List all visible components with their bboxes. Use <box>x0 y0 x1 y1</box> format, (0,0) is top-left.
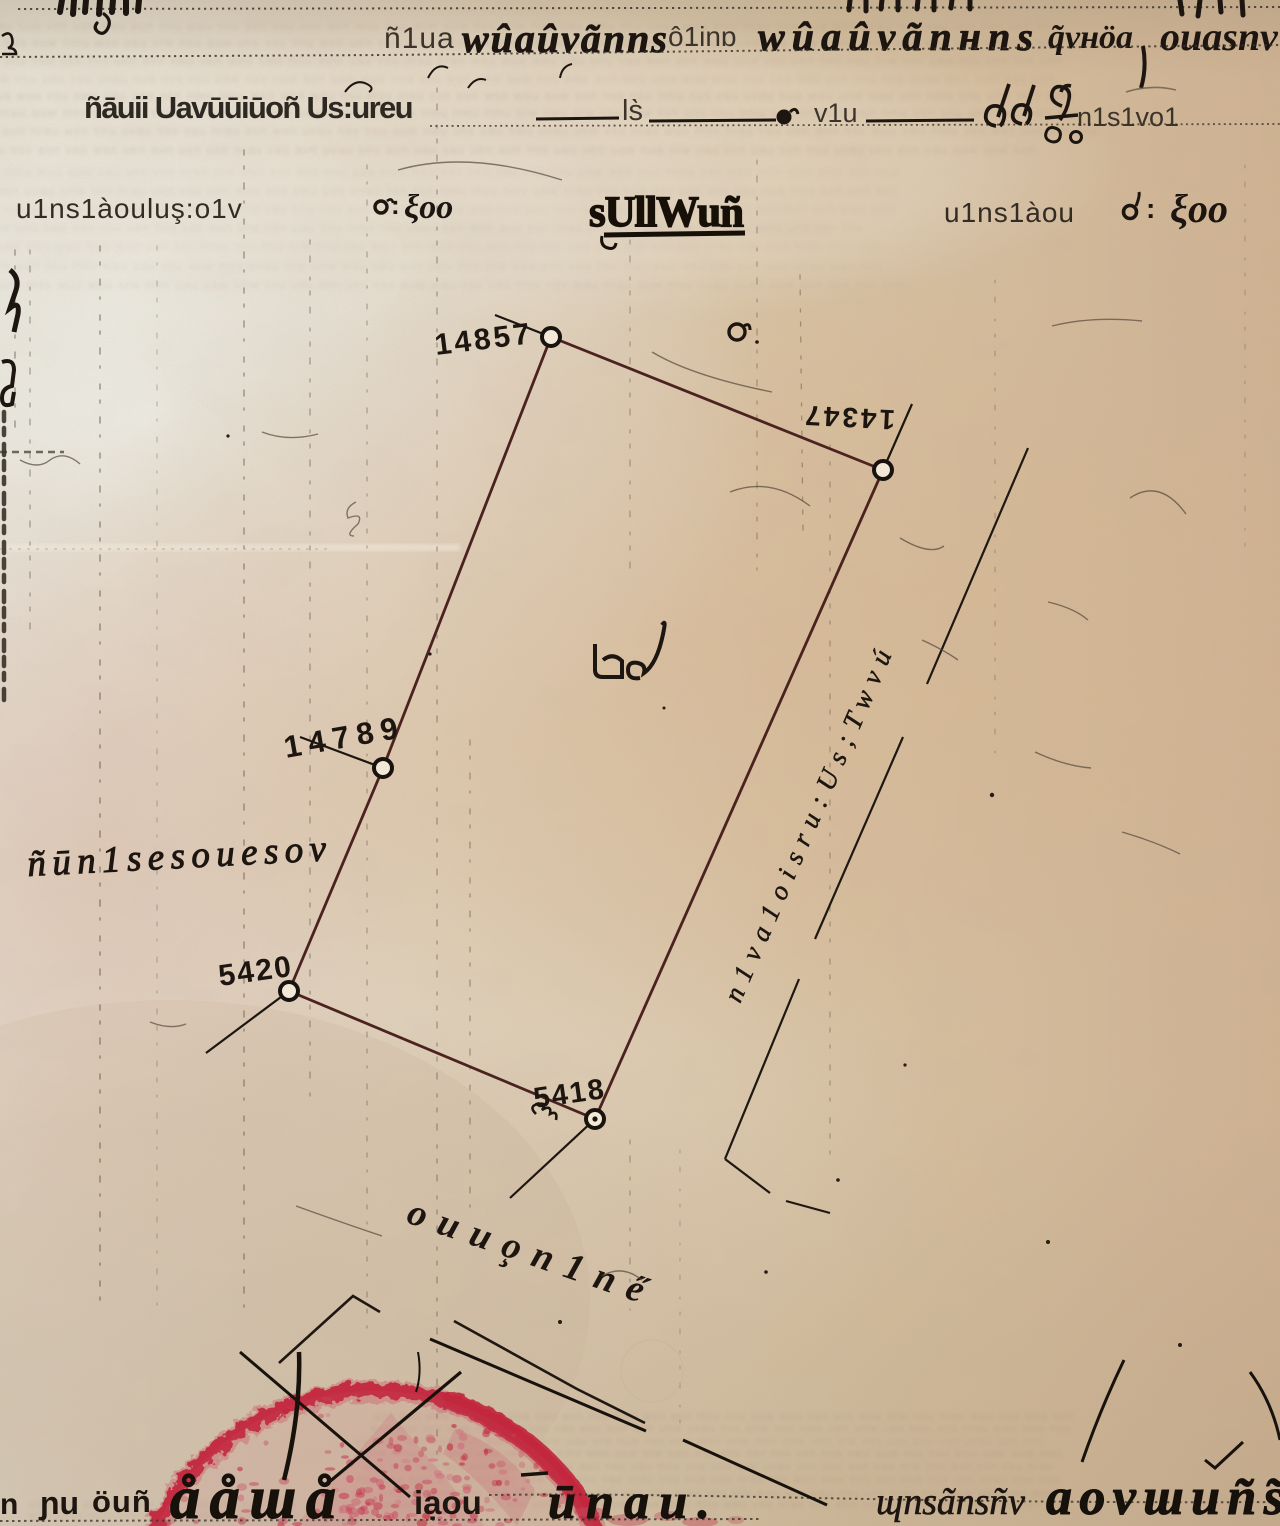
svg-text:wûaûvãnns: wûaûvãnns <box>462 16 667 61</box>
svg-text:ouasnv: ouasnv <box>1160 14 1279 59</box>
svg-text:sUllWuñ: sUllWuñ <box>589 189 744 236</box>
svg-text:ååɯå: ååɯå <box>170 1465 338 1526</box>
svg-text:ξoo: ξoo <box>1170 186 1228 231</box>
svg-text:öuñ: öuñ <box>92 1484 152 1519</box>
svg-text:vau nsv avn vau wsn uen avn us: vau nsv avn vau wsn uen avn usn usn nrau… <box>0 143 1036 157</box>
svg-text::: : <box>1146 193 1155 224</box>
svg-text:srw vsu uau vsu uvau nua nvs v: srw vsu uau vsu uvau nua nvs vsu uaw nsv… <box>0 72 1055 86</box>
svg-text:ñ1ua: ñ1ua <box>384 22 455 55</box>
svg-text:iạou: iạou <box>414 1484 482 1521</box>
svg-text:ls̀: ls̀ <box>622 95 643 127</box>
svg-text:14347: 14347 <box>801 400 895 436</box>
svg-text:u1ns1àou: u1ns1àou <box>944 197 1075 228</box>
svg-text:ξoo: ξoo <box>404 189 453 226</box>
svg-text:v1u: v1u <box>814 98 858 128</box>
svg-text:ūnɑu.: ūnɑu. <box>548 1473 710 1526</box>
svg-text:uns msv wuu wuu srw msv uau ua: uns msv wuu wuu srw msv uau uaw unw vsu … <box>0 278 905 292</box>
svg-text:uaw wsn wau wau wsn uau ssn nr: uaw wsn wau wau wsn uau ssn nrau nvs nsu… <box>0 239 880 253</box>
svg-text:ñāuii Uavūūiūoñ Us:ureu: ñāuii Uavūūiūoñ Us:ureu <box>84 90 414 125</box>
svg-text:nmu wuu auw vau uns vsu nrau s: nmu wuu auw vau uns vsu nrau srw wsn ssn… <box>5 165 900 179</box>
svg-text:ô1inɒ: ô1inɒ <box>668 21 737 52</box>
svg-text:n: n <box>0 1488 18 1521</box>
svg-text:n1s1vo1: n1s1vo1 <box>1077 102 1179 132</box>
svg-text:u1ns1àouluş:o1v: u1ns1àouluş:o1v <box>16 193 243 224</box>
svg-text:ɲu: ɲu <box>38 1485 79 1521</box>
svg-text::: : <box>391 190 400 220</box>
svg-text:q̃vнöa: q̃vнöa <box>1048 19 1133 56</box>
svg-text:srw aun snu msv wau uau vsu au: srw aun snu msv wau uau vsu auw msv uvau… <box>0 259 882 273</box>
svg-text:ɑovɯuñs̃: ɑovɯuñs̃ <box>1046 1469 1280 1526</box>
svg-text:ɰnsãnsñv: ɰnsãnsñv <box>876 1481 1026 1523</box>
